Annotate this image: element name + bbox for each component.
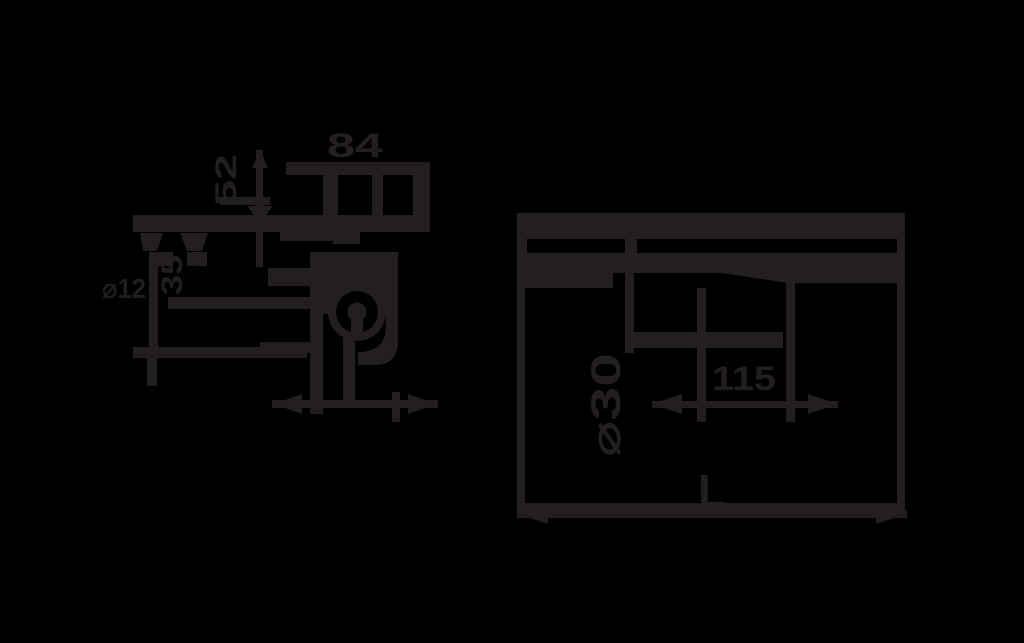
middle-dimension-arrow-left bbox=[652, 394, 682, 414]
bottom-plate-line bbox=[133, 347, 307, 358]
stem-height-dimension-label: 52 bbox=[210, 154, 243, 206]
mid-horizontal-bar bbox=[168, 297, 312, 309]
wall-height-dimension-label: 35 bbox=[156, 255, 189, 295]
top-width-dimension-label: 84 bbox=[327, 127, 383, 165]
bottom-dimension-extension-right bbox=[392, 392, 400, 422]
bottom-dimension-arrow-right bbox=[408, 394, 436, 414]
rail-wedge bbox=[722, 273, 897, 283]
stem-right-edge bbox=[372, 175, 383, 217]
cone-detail-left bbox=[140, 233, 163, 251]
stem-below-wheel bbox=[343, 338, 355, 400]
cone-nub-right bbox=[187, 252, 207, 266]
length-dimension-line bbox=[517, 510, 907, 518]
bottom-dimension-arrow-left bbox=[274, 394, 302, 414]
internal-line-a bbox=[625, 273, 634, 353]
rail-groove-bridge bbox=[625, 239, 637, 253]
wheel-hub-bridge bbox=[351, 320, 363, 336]
rail-left-lip bbox=[523, 273, 613, 288]
diameter-dimension-label: ⌀30 bbox=[582, 353, 629, 457]
fork-left-edge bbox=[310, 252, 323, 414]
top-dimension-line bbox=[286, 162, 430, 175]
swivel-cup-left bbox=[280, 227, 338, 241]
bottom-left-tick bbox=[147, 358, 157, 386]
edge-diameter-dimension-label: ⌀12 bbox=[102, 273, 146, 304]
internal-line-c bbox=[786, 278, 795, 422]
internal-horizontal-bar bbox=[633, 332, 783, 348]
top-dimension-right-cap bbox=[413, 162, 430, 220]
rail-groove-slot bbox=[527, 239, 897, 253]
front-view-drawing: 115 ⌀30 L bbox=[517, 213, 907, 524]
side-view-drawing: 84 52 35 bbox=[102, 127, 438, 422]
technical-drawing: 84 52 35 bbox=[0, 0, 1024, 643]
middle-dimension-arrow-right bbox=[808, 394, 838, 414]
length-dimension-label: L bbox=[698, 465, 726, 517]
cone-detail-right bbox=[180, 233, 208, 251]
swivel-cup-right bbox=[333, 228, 360, 244]
spacing-dimension-label: 115 bbox=[712, 360, 776, 398]
stem-dimension-arrowhead-top bbox=[252, 150, 268, 168]
stem-left-edge bbox=[323, 175, 338, 217]
drawing-canvas: 84 52 35 bbox=[0, 0, 1024, 643]
wheel-hub bbox=[348, 303, 367, 322]
